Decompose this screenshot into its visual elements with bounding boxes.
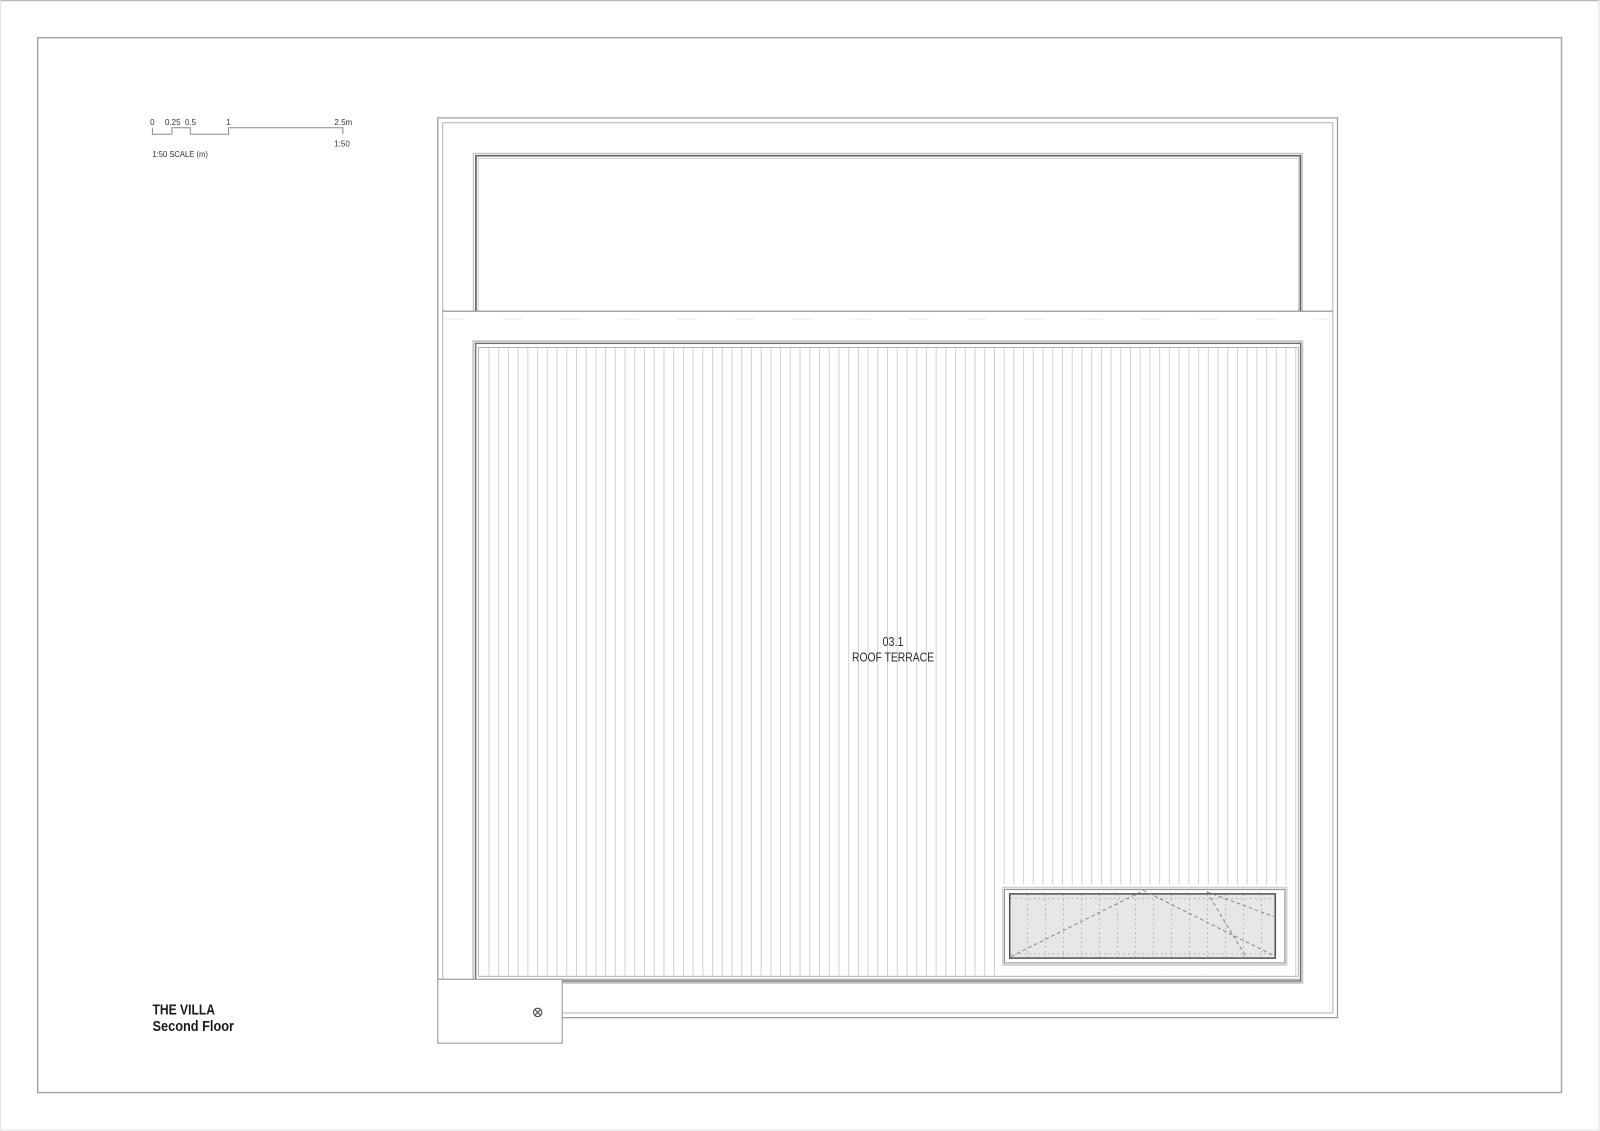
svg-text:0.25: 0.25 — [165, 118, 181, 127]
svg-text:ROOF TERRACE: ROOF TERRACE — [852, 649, 934, 664]
svg-text:03.1: 03.1 — [883, 634, 904, 649]
svg-text:2.5m: 2.5m — [334, 118, 352, 127]
svg-text:0.5: 0.5 — [185, 118, 197, 127]
svg-text:1:50 SCALE (m): 1:50 SCALE (m) — [152, 150, 208, 159]
svg-text:Second Floor: Second Floor — [153, 1018, 235, 1035]
svg-text:0: 0 — [150, 118, 155, 127]
svg-text:1: 1 — [226, 118, 231, 127]
svg-text:1:50: 1:50 — [334, 140, 350, 149]
svg-text:THE VILLA: THE VILLA — [153, 1002, 216, 1019]
